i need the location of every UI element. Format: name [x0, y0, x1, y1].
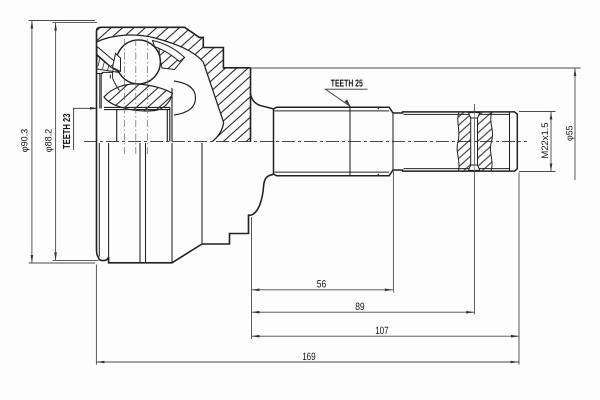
- svg-text:TEETH 23: TEETH 23: [62, 113, 73, 149]
- svg-text:φ90.3: φ90.3: [19, 129, 29, 153]
- svg-text:φ55: φ55: [565, 126, 575, 142]
- svg-text:169: 169: [302, 351, 316, 363]
- svg-text:M22x1.5: M22x1.5: [540, 123, 550, 159]
- svg-text:107: 107: [375, 325, 389, 337]
- svg-text:56: 56: [317, 278, 327, 290]
- svg-text:89: 89: [355, 301, 365, 313]
- svg-text:TEETH 25: TEETH 25: [331, 79, 363, 90]
- svg-text:φ88.2: φ88.2: [43, 129, 53, 153]
